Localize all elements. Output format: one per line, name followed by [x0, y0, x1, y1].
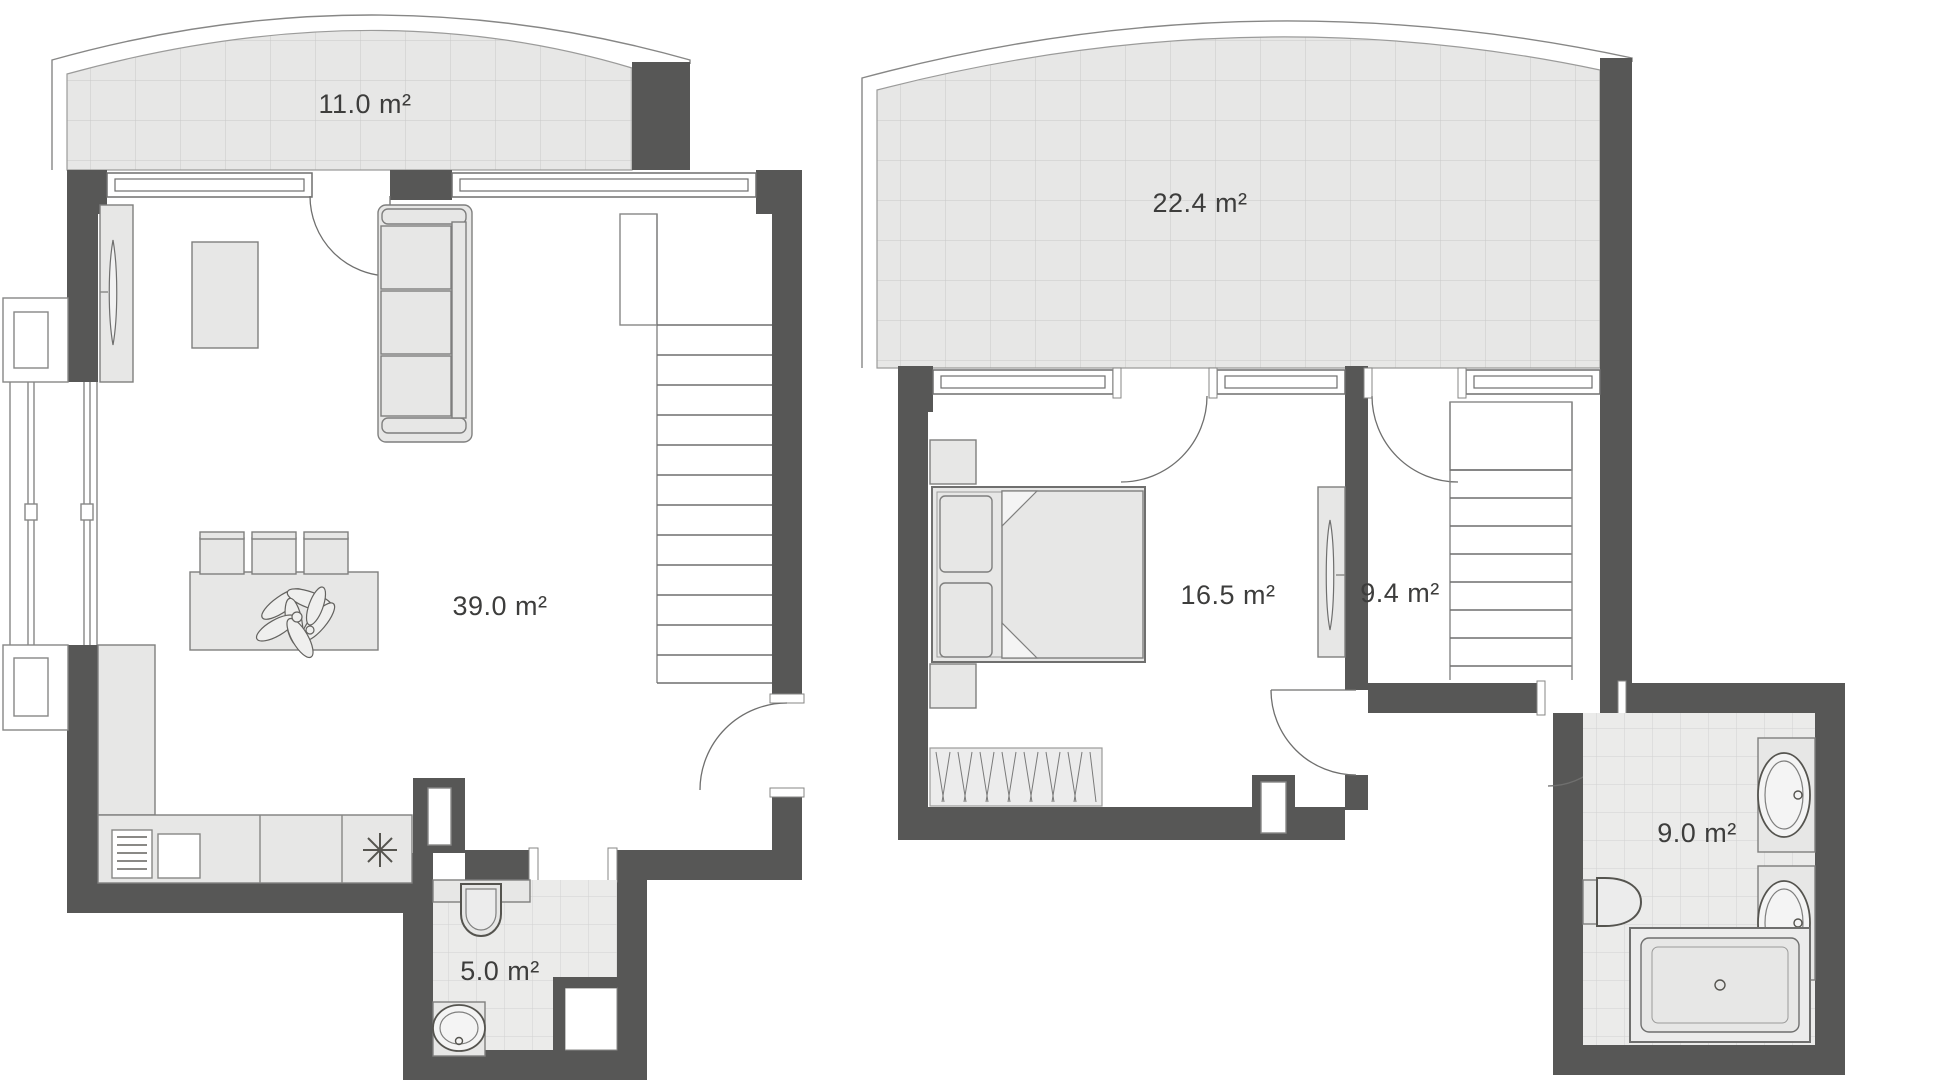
floor-plan-page: 11.0 m² [0, 0, 1939, 1080]
blanket [1002, 491, 1143, 658]
bedroom-hallway-door-arc [1271, 690, 1356, 775]
door-jamb [1537, 681, 1545, 715]
door-jamb [1458, 368, 1466, 398]
lower-bathroom: 5.0 m² [433, 880, 617, 1080]
lower-terrace: 11.0 m² [52, 15, 690, 170]
nightstand [930, 440, 976, 484]
terrace-area-label: 22.4 m² [1152, 188, 1247, 218]
door-jamb [770, 788, 804, 797]
facade-pillar [3, 298, 68, 382]
sofa [378, 205, 472, 442]
sofa-cushion [381, 356, 451, 416]
bedroom-area-label: 16.5 m² [1180, 580, 1275, 610]
bathroom-area-label: 5.0 m² [460, 956, 540, 986]
dining-set [190, 532, 378, 661]
lower-floor-plan: 11.0 m² [3, 15, 804, 1080]
window [452, 173, 756, 197]
chair [252, 532, 296, 574]
window [1217, 370, 1345, 394]
door-jamb [1618, 681, 1626, 715]
pillow [940, 496, 992, 572]
double-bed [932, 487, 1145, 662]
nightstand [930, 664, 976, 708]
sofa-cushion [381, 291, 451, 354]
kitchen [98, 645, 412, 883]
tall-window [10, 382, 97, 645]
floor-plan-canvas: 11.0 m² [0, 0, 1939, 1080]
hallway-terrace-door-arc [1372, 396, 1458, 482]
sofa-cushion [381, 226, 451, 289]
chair [304, 532, 348, 574]
window [107, 173, 312, 197]
upper-windows [933, 370, 1600, 394]
rug [930, 748, 1102, 806]
living-room-area-label: 39.0 m² [452, 591, 547, 621]
door-jamb [1113, 368, 1121, 398]
bedroom: 16.5 m² [930, 440, 1345, 806]
terrace-area-label: 11.0 m² [318, 89, 411, 119]
tv-icon [1326, 520, 1334, 630]
sofa-backrest [452, 222, 466, 418]
dishwasher-icon [112, 830, 152, 878]
door-jamb [770, 694, 804, 703]
toilet-icon [1583, 878, 1641, 926]
living-room: 39.0 m² [98, 205, 548, 883]
entry-door-arc [700, 703, 787, 790]
upper-terrace: 22.4 m² [862, 21, 1632, 368]
tv-panel [100, 205, 133, 382]
sofa-armrest [382, 418, 466, 433]
pillow [940, 583, 992, 657]
door-jamb [1209, 368, 1217, 398]
duct-shaft [1261, 782, 1286, 833]
kitchen-counter-vertical [98, 645, 155, 815]
upper-bathroom: 9.0 m² [1583, 713, 1815, 1045]
hallway-area-label: 9.4 m² [1360, 578, 1440, 608]
upper-floor-plan: 22.4 m² [862, 21, 1845, 1075]
lower-staircase [620, 214, 772, 683]
upper-doors [1113, 368, 1626, 786]
kitchen-sink-icon [158, 834, 200, 878]
door-jamb [529, 848, 538, 882]
upper-bathroom-area-label: 9.0 m² [1657, 818, 1737, 848]
bathtub-icon [1630, 928, 1810, 1042]
toilet-icon [461, 884, 501, 936]
chair [200, 532, 244, 574]
door-jamb [1364, 368, 1372, 398]
tv-panel [1318, 487, 1345, 657]
shaft-void [565, 988, 617, 1050]
duct-shaft [428, 788, 451, 845]
bedroom-door-arc [1121, 396, 1207, 482]
door-jamb [608, 848, 617, 882]
window [1466, 370, 1600, 394]
washbasin-icon [433, 1002, 485, 1056]
tv-icon [109, 240, 117, 345]
stove-burner-icon [363, 833, 397, 867]
window [933, 370, 1113, 394]
hallway: 9.4 m² [1360, 402, 1572, 680]
coffee-table [192, 242, 258, 348]
washbasin-icon [1758, 738, 1815, 852]
upper-staircase [1450, 402, 1572, 680]
